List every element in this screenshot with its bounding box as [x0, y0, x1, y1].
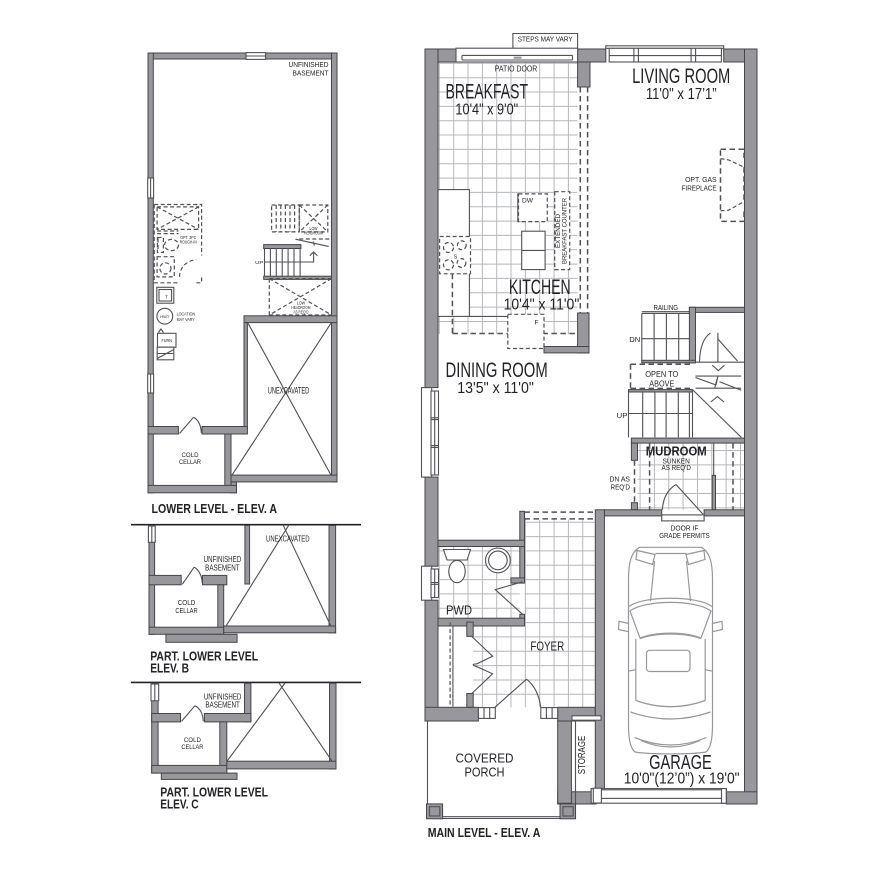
svg-text:CELLAR: CELLAR	[179, 459, 201, 466]
svg-text:BREAKFAST: BREAKFAST	[446, 81, 529, 104]
svg-text:MAIN LEVEL - ELEV. A: MAIN LEVEL - ELEV. A	[428, 826, 541, 840]
svg-text:ABOVE: ABOVE	[649, 379, 674, 389]
svg-text:HWT: HWT	[160, 314, 170, 319]
svg-text:UP: UP	[617, 411, 628, 420]
svg-text:CELLAR: CELLAR	[181, 744, 203, 751]
svg-text:10'4" x 11'0": 10'4" x 11'0"	[504, 297, 580, 314]
svg-text:DW: DW	[522, 199, 533, 205]
svg-text:BASEMENT: BASEMENT	[205, 700, 240, 709]
svg-text:ELEV. B: ELEV. B	[150, 661, 189, 675]
svg-text:ROUGH-IN: ROUGH-IN	[180, 240, 197, 245]
svg-text:COLD: COLD	[178, 600, 196, 607]
svg-text:LIVING ROOM: LIVING ROOM	[632, 65, 730, 88]
svg-text:PATIO DOOR: PATIO DOOR	[495, 64, 538, 73]
svg-text:OPEN TO: OPEN TO	[645, 369, 678, 379]
svg-text:10'0"(12’0”) x 19'0": 10'0"(12’0”) x 19'0"	[624, 771, 740, 788]
svg-text:AS REQ'D: AS REQ'D	[293, 310, 308, 315]
svg-text:REQ'D: REQ'D	[611, 483, 631, 492]
svg-text:PWD: PWD	[446, 603, 472, 617]
svg-text:MAY VARY: MAY VARY	[177, 317, 196, 323]
svg-text:LOWER LEVEL - ELEV. A: LOWER LEVEL - ELEV. A	[152, 502, 278, 516]
svg-text:HEADROOM: HEADROOM	[304, 230, 323, 235]
svg-text:F: F	[535, 320, 539, 327]
svg-text:FOYER: FOYER	[530, 640, 564, 654]
svg-text:UNEXCAVATED: UNEXCAVATED	[266, 535, 310, 544]
svg-text:COLD: COLD	[184, 737, 201, 744]
svg-text:AS REQ'D: AS REQ'D	[662, 463, 691, 472]
svg-text:13'5" x 11'0": 13'5" x 11'0"	[457, 380, 534, 397]
svg-text:DINING ROOM: DINING ROOM	[446, 359, 548, 382]
svg-text:PORCH: PORCH	[465, 765, 505, 779]
svg-text:UP: UP	[255, 260, 263, 265]
svg-text:UNEXCAVATED: UNEXCAVATED	[268, 386, 310, 396]
svg-text:11'0" x 17’1”: 11'0" x 17’1”	[646, 86, 717, 103]
svg-text:RAILING: RAILING	[654, 303, 679, 312]
svg-text:COVERED: COVERED	[456, 751, 514, 765]
svg-text:COLD: COLD	[182, 452, 199, 459]
svg-text:LOCATION: LOCATION	[177, 311, 196, 317]
svg-text:BASEMENT: BASEMENT	[205, 564, 240, 573]
svg-text:BREAKFAST COUNTER: BREAKFAST COUNTER	[562, 197, 569, 264]
svg-text:GRADE PERMITS: GRADE PERMITS	[659, 531, 710, 540]
svg-text:10'4" x 9'0": 10'4" x 9'0"	[455, 102, 518, 119]
svg-text:BASEMENT: BASEMENT	[293, 68, 330, 77]
svg-text:ELEV. C: ELEV. C	[160, 797, 198, 811]
svg-text:CELLAR: CELLAR	[175, 608, 197, 615]
svg-text:T: T	[165, 295, 168, 300]
svg-text:FIREPLACE: FIREPLACE	[682, 183, 717, 192]
svg-text:DN: DN	[629, 335, 640, 344]
svg-text:STORAGE: STORAGE	[576, 736, 588, 775]
svg-text:FURN: FURN	[161, 338, 172, 343]
svg-text:STEPS MAY VARY: STEPS MAY VARY	[518, 35, 573, 44]
